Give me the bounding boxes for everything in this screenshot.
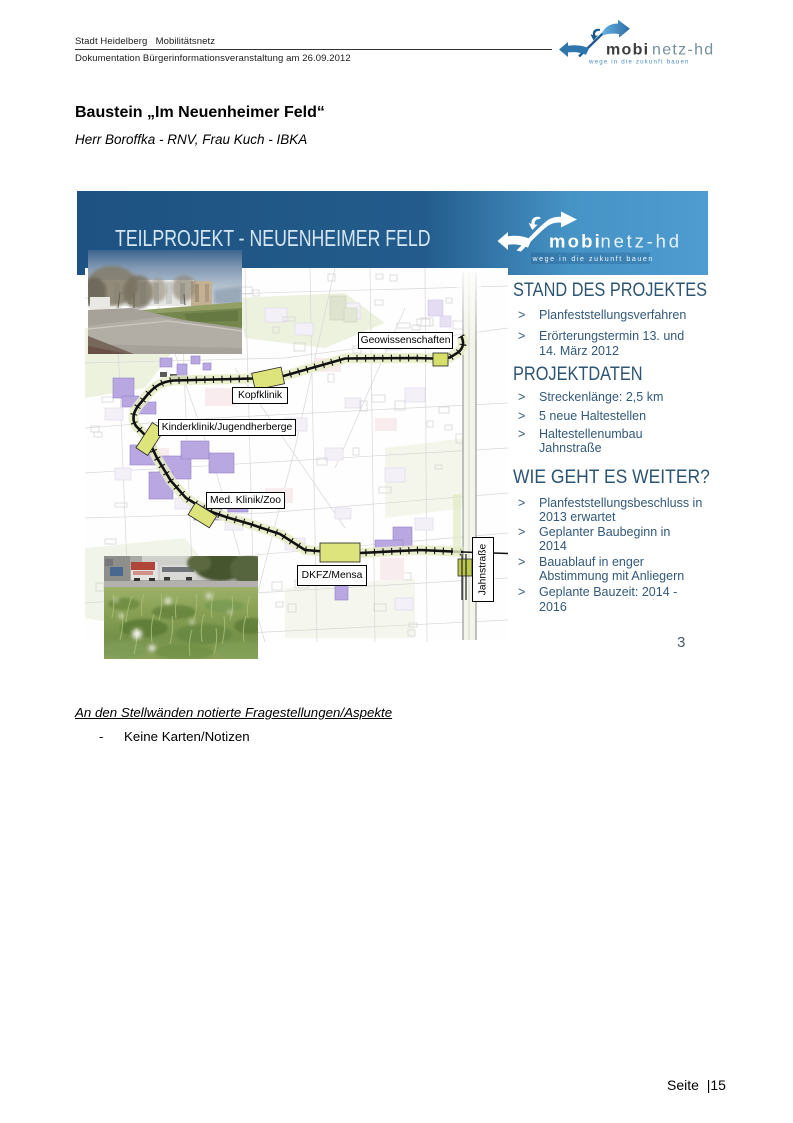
svg-text:mobi: mobi [549,231,602,252]
svg-text:netz-hd: netz-hd [652,42,714,59]
svg-text:wege in die zukunft bauen: wege in die zukunft bauen [588,59,690,66]
svg-text:wege in die zukunft bauen: wege in die zukunft bauen [532,256,654,263]
svg-text:mobi: mobi [606,42,649,59]
svg-text:netz-hd: netz-hd [601,231,682,252]
